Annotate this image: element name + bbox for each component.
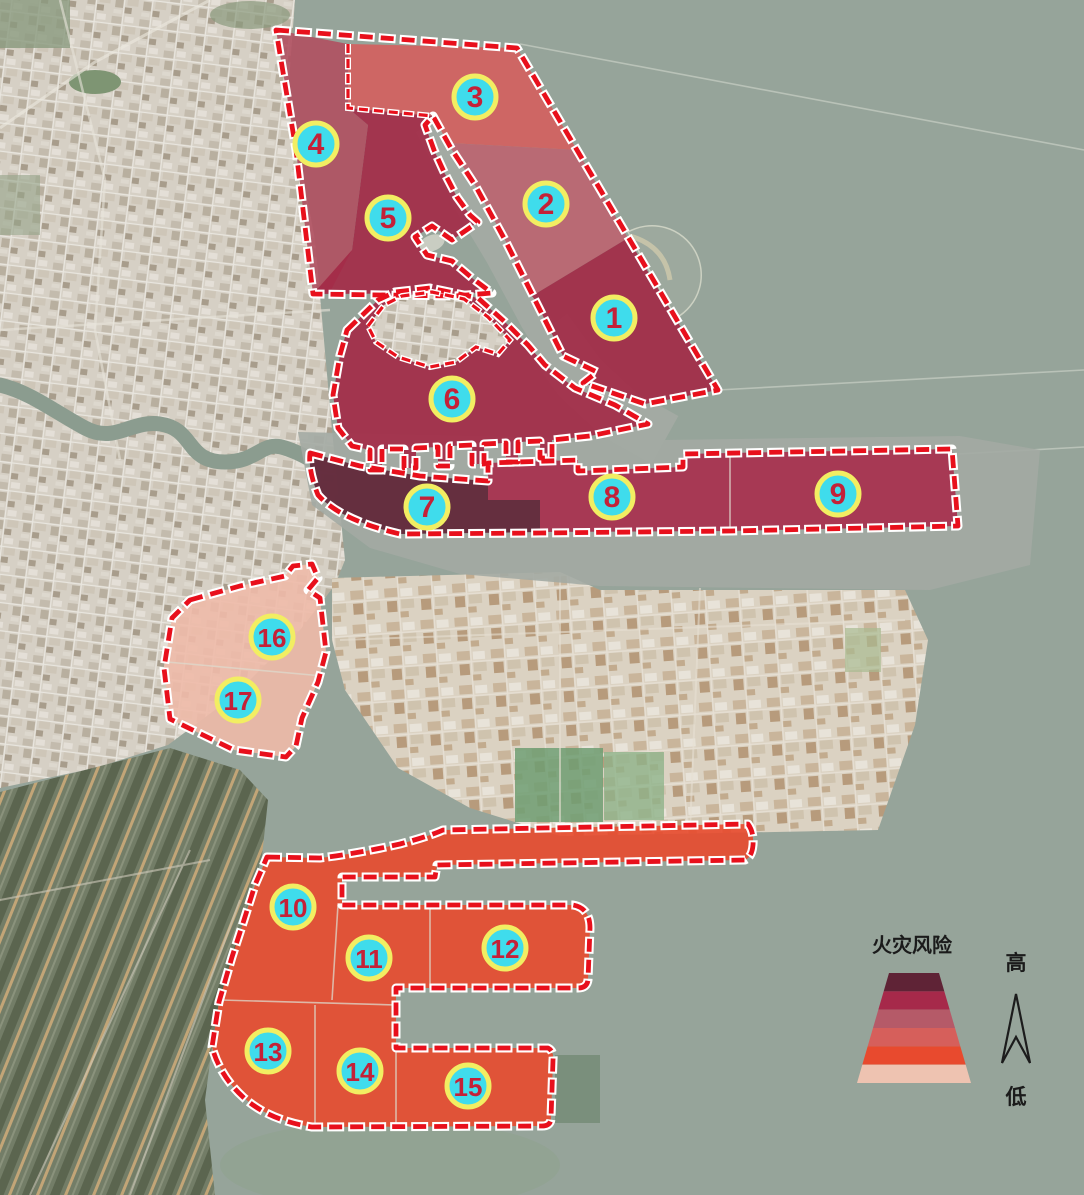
zone-badge-number: 9 (830, 478, 847, 511)
zone-badge-17: 17 (217, 679, 259, 721)
zone-badge-number: 15 (454, 1072, 483, 1102)
zone-badge-13: 13 (247, 1030, 289, 1072)
zone-badge-4: 4 (295, 123, 337, 165)
park (0, 175, 40, 235)
zone-badge-number: 7 (419, 491, 436, 524)
zone-badge-number: 16 (258, 623, 287, 653)
shallow-water (555, 1055, 600, 1123)
zone-badge-number: 1 (606, 302, 623, 335)
zone-badge-9: 9 (817, 473, 859, 515)
zone-badge-2: 2 (525, 183, 567, 225)
pond (845, 628, 881, 672)
zone-badge-number: 3 (467, 81, 484, 114)
legend-high-label: 高 (1006, 951, 1027, 975)
legend-band-5 (862, 1046, 965, 1064)
zone-badge-number: 4 (308, 128, 325, 161)
map-canvas: 1234567891011121314151617 火灾风险 高 低 (0, 0, 1084, 1195)
park (210, 1, 290, 29)
zone-badge-number: 6 (444, 383, 461, 416)
zone-badge-3: 3 (454, 76, 496, 118)
zone-badge-5: 5 (367, 197, 409, 239)
zone-badge-number: 2 (538, 188, 555, 221)
zone-badge-1: 1 (593, 297, 635, 339)
legend-band-2 (878, 991, 949, 1009)
zone-badge-number: 8 (604, 481, 621, 514)
legend-band-1 (884, 973, 945, 991)
zone-badge-14: 14 (339, 1050, 381, 1092)
zone-badge-number: 13 (254, 1037, 283, 1067)
pond (604, 752, 664, 820)
zone-badge-number: 17 (224, 686, 253, 716)
zone-badge-10: 10 (272, 886, 314, 928)
zone-badge-number: 10 (279, 893, 308, 923)
zone-badge-number: 14 (346, 1057, 375, 1087)
zone-badge-8: 8 (591, 476, 633, 518)
zone-badge-11: 11 (348, 937, 390, 979)
zone-badge-6: 6 (431, 378, 473, 420)
zone-badge-7: 7 (406, 486, 448, 528)
fire-risk-map: 1234567891011121314151617 火灾风险 高 低 (0, 0, 1084, 1195)
legend-band-3 (873, 1010, 955, 1028)
zone-badge-number: 11 (355, 944, 383, 974)
legend-band-4 (868, 1028, 961, 1046)
park (0, 0, 70, 48)
legend-low-label: 低 (1005, 1085, 1027, 1109)
zone-badge-number: 12 (491, 934, 520, 964)
legend-band-6 (857, 1065, 971, 1083)
legend-title: 火灾风险 (872, 933, 953, 957)
zone-badge-number: 5 (380, 202, 397, 235)
zone-badge-16: 16 (251, 616, 293, 658)
zone-badge-12: 12 (484, 927, 526, 969)
zone-badge-15: 15 (447, 1065, 489, 1107)
